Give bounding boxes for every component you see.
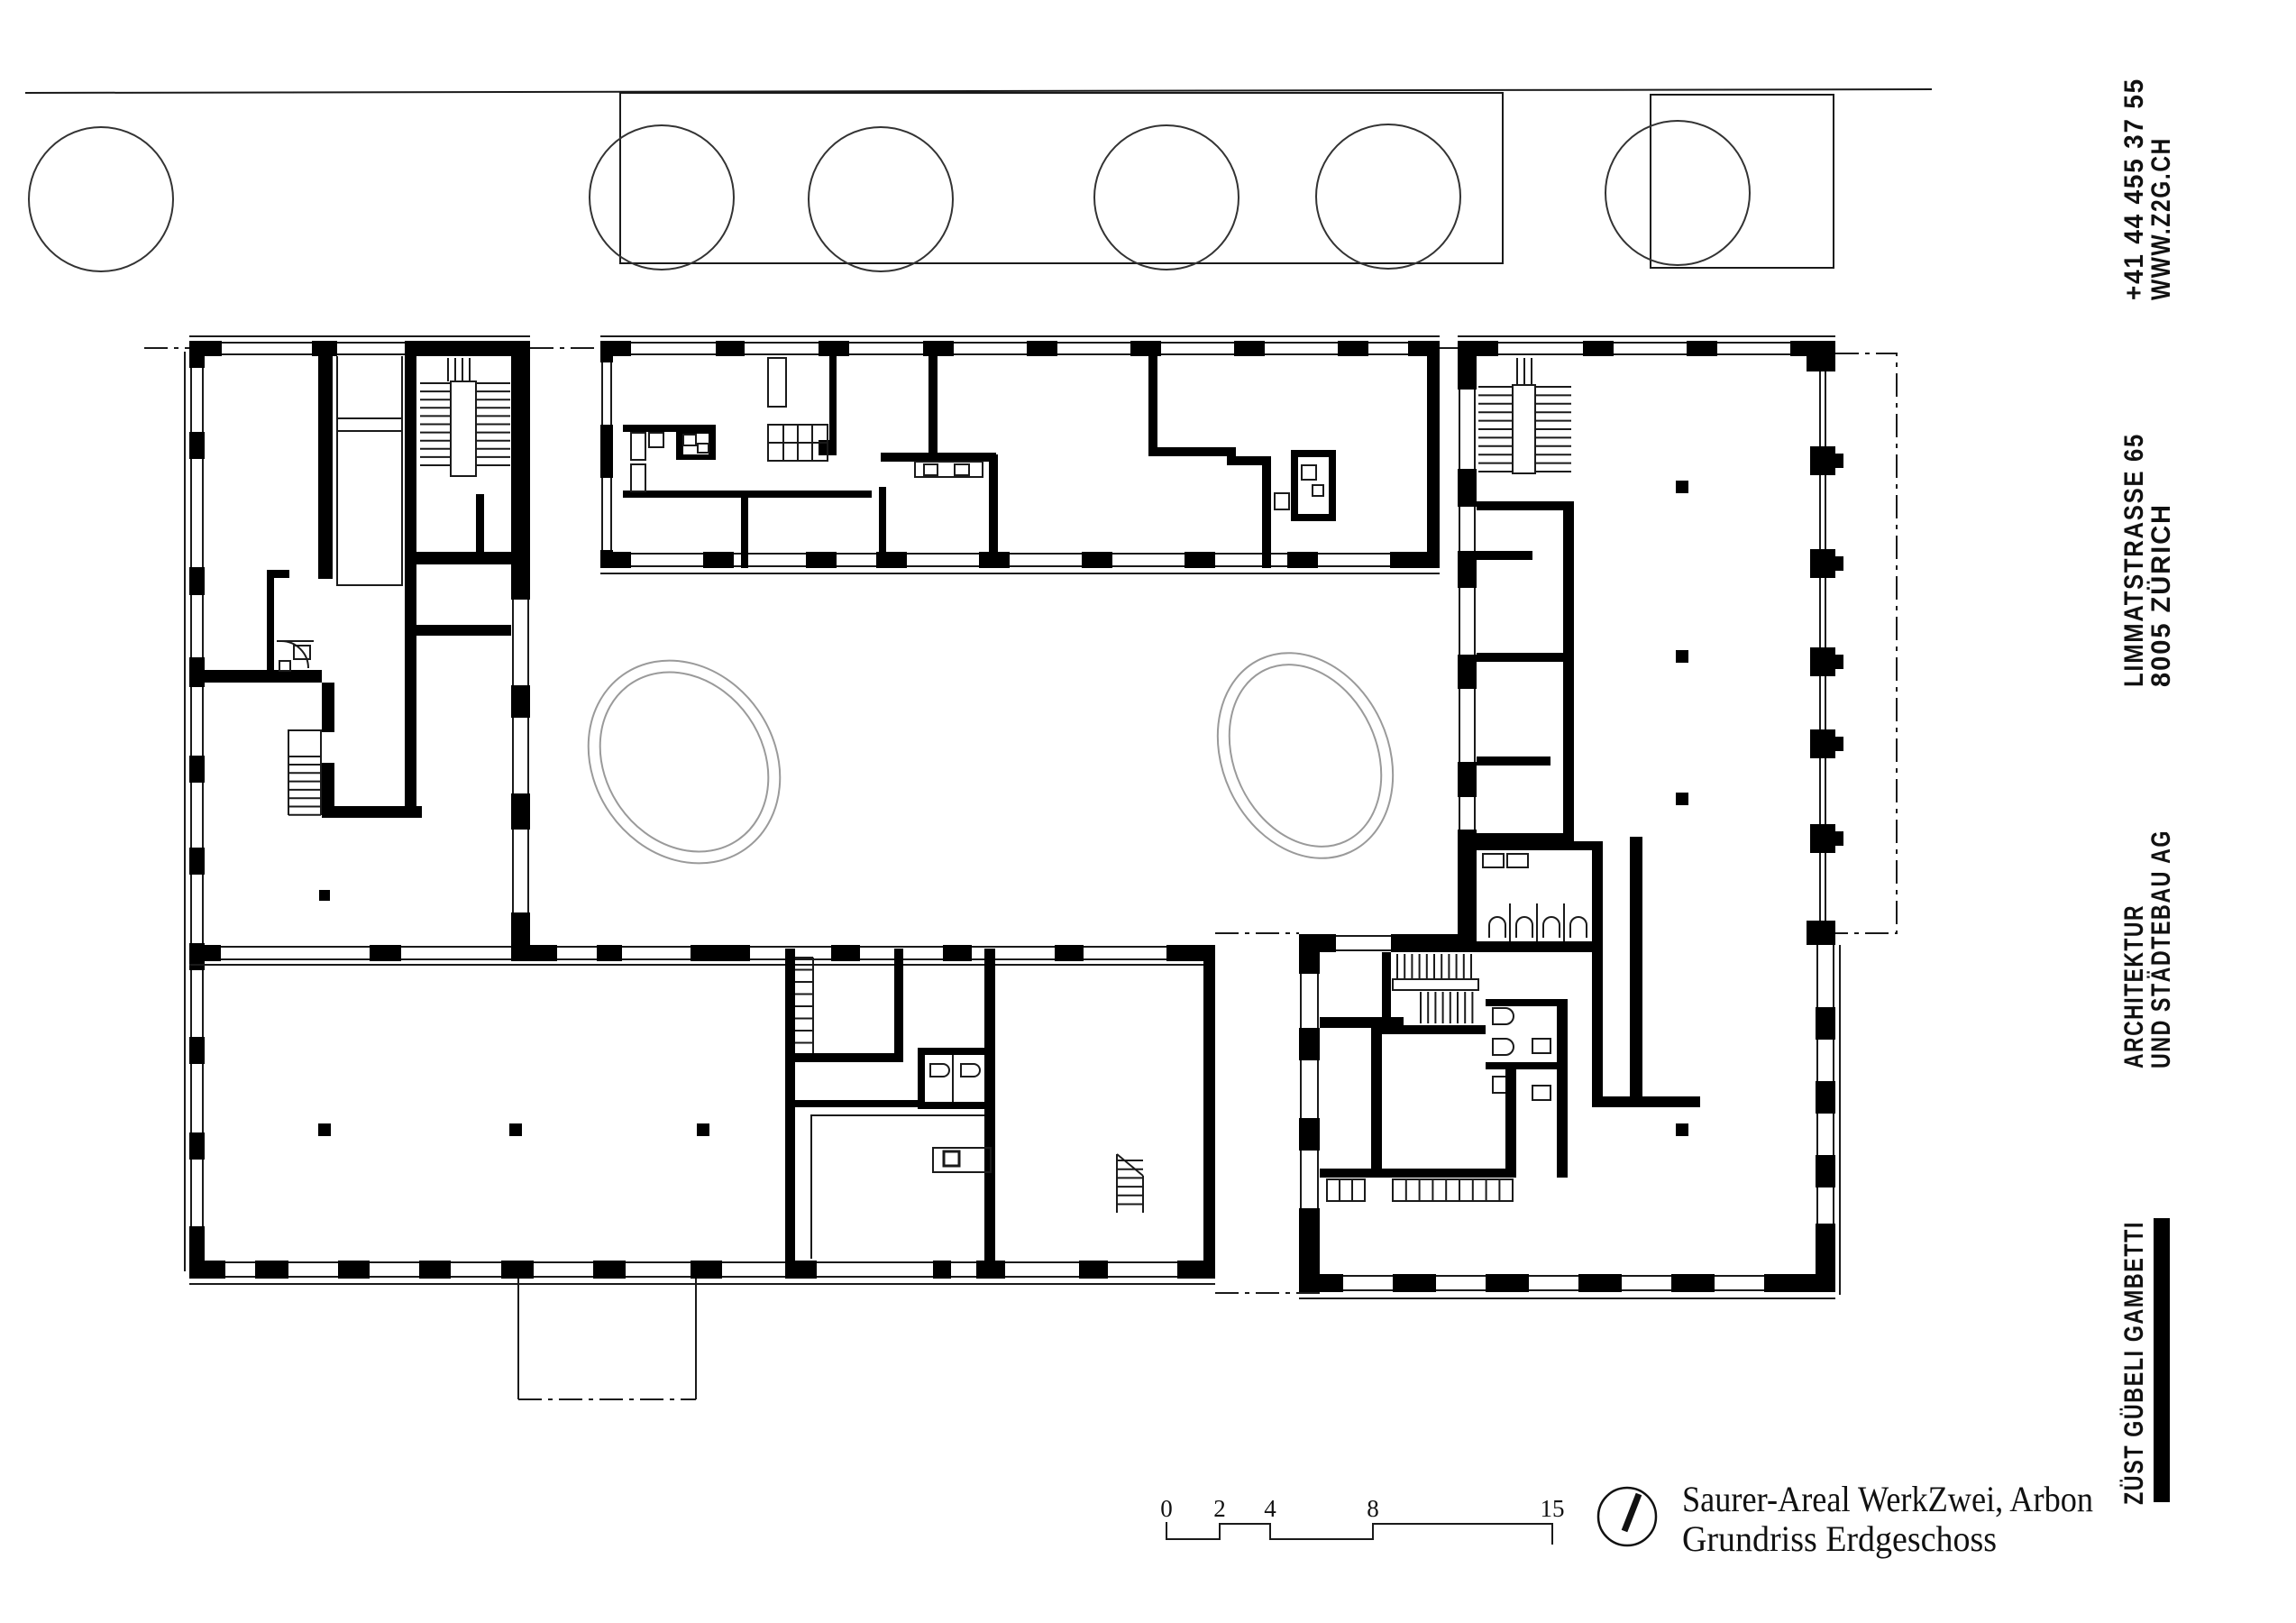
svg-text:Saurer-Areal WerkZwei, Arbon: Saurer-Areal WerkZwei, Arbon xyxy=(1682,1479,2093,1519)
svg-text:+41 44 455 37 55: +41 44 455 37 55 xyxy=(2119,78,2149,300)
svg-text:8: 8 xyxy=(1367,1495,1379,1522)
svg-text:0: 0 xyxy=(1160,1495,1173,1522)
svg-text:ZÜST GÜBELI GAMBETTI: ZÜST GÜBELI GAMBETTI xyxy=(2119,1221,2149,1505)
svg-text:2: 2 xyxy=(1213,1495,1226,1522)
svg-text:8005 ZÜRICH: 8005 ZÜRICH xyxy=(2146,503,2176,687)
svg-text:LIMMATSTRASSE 65: LIMMATSTRASSE 65 xyxy=(2119,433,2149,687)
svg-text:4: 4 xyxy=(1264,1495,1276,1522)
svg-text:Grundriss Erdgeschoss: Grundriss Erdgeschoss xyxy=(1682,1518,1997,1559)
svg-text:UND STÄDTEBAU AG: UND STÄDTEBAU AG xyxy=(2146,830,2176,1068)
svg-text:WWW.Z2G.CH: WWW.Z2G.CH xyxy=(2146,137,2176,300)
svg-text:15: 15 xyxy=(1541,1495,1565,1522)
svg-text:ARCHITEKTUR: ARCHITEKTUR xyxy=(2119,904,2149,1068)
